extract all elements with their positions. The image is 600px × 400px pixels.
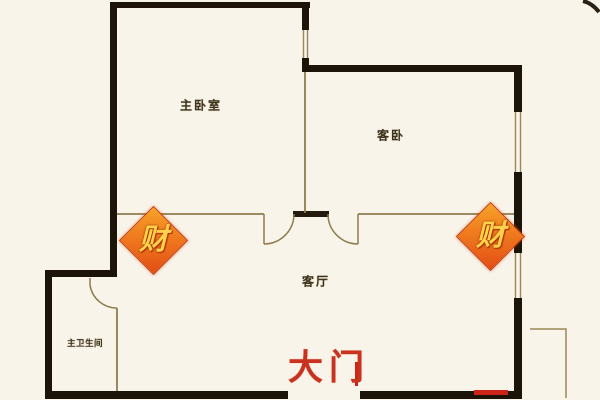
corner-mark-top-right <box>583 1 599 12</box>
wall-right-segment-3 <box>514 298 522 399</box>
window-top-center <box>304 30 308 58</box>
window-right-lower <box>516 253 521 298</box>
wall-bottom-left-of-door <box>45 391 288 399</box>
master-bedroom-label: 主卧室 <box>180 97 222 114</box>
floorplan-canvas: 主卧室 客卧 客厅 主卫生间 大门 财 财 <box>0 0 600 400</box>
guest-bedroom-label: 客卧 <box>377 127 405 144</box>
exterior-structure <box>530 329 566 398</box>
wall-top-center-upper <box>302 2 309 30</box>
main-door-red-sill <box>474 390 508 395</box>
door-arc-bathroom <box>90 278 117 308</box>
living-room-label: 客厅 <box>302 273 330 290</box>
wall-central-stub <box>293 211 329 217</box>
main-door-label: 大门 <box>288 340 370 391</box>
wall-right-segment-1 <box>514 65 522 112</box>
wall-guest-bedroom-top <box>302 65 522 72</box>
wall-left-step <box>45 270 117 277</box>
wall-top <box>110 2 310 8</box>
wealth-charm-right-text: 财 <box>476 222 505 251</box>
door-arc-right-bedroom <box>328 214 358 244</box>
master-bathroom-label: 主卫生间 <box>67 337 103 349</box>
wall-top-center-lower <box>302 58 309 72</box>
door-arc-left-bedroom <box>264 214 294 244</box>
wealth-charm-left-text: 财 <box>139 226 168 255</box>
window-right-upper <box>516 112 521 172</box>
wall-left-lower <box>45 270 52 399</box>
wall-left-upper <box>110 2 117 277</box>
